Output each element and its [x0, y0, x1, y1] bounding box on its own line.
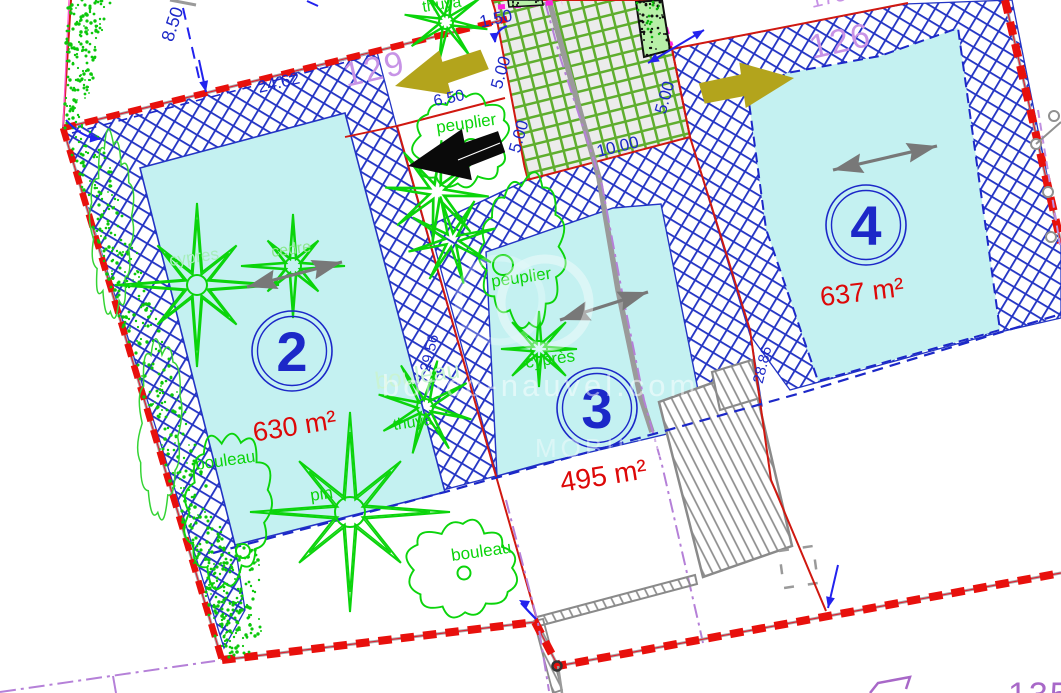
svg-text:4: 4: [850, 194, 881, 257]
svg-text:MOBILIE: MOBILIE: [535, 433, 668, 463]
svg-text:135: 135: [1008, 676, 1061, 693]
svg-text:pin: pin: [309, 483, 334, 505]
svg-text:2: 2: [276, 320, 307, 383]
svg-text:bonco-nauvel.com: bonco-nauvel.com: [382, 368, 699, 403]
